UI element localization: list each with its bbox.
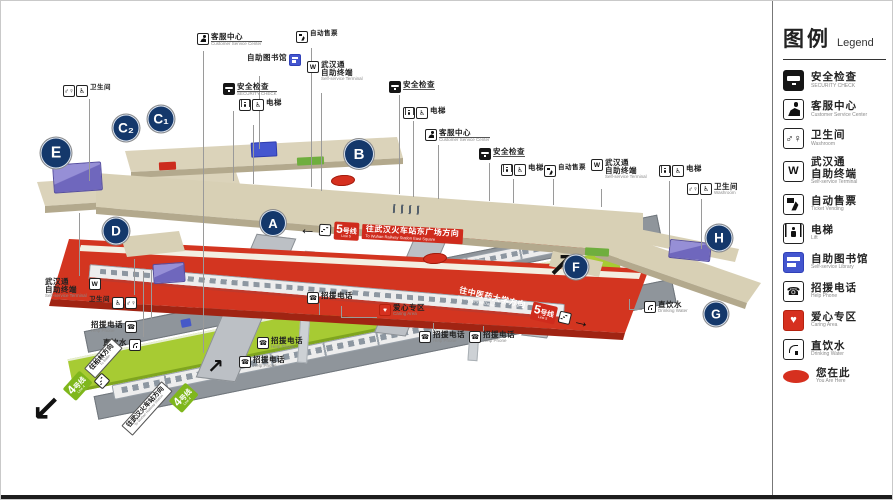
legend-title-zh: 图例 <box>783 23 831 53</box>
legend-label-en: SECURITY CHECK <box>811 84 857 90</box>
leader-line <box>341 306 342 317</box>
legend-icon <box>783 223 804 244</box>
legend-icon <box>783 370 809 383</box>
facility-callout: 电梯 <box>403 107 446 119</box>
leader-line <box>438 145 439 199</box>
callout-icons <box>307 292 319 304</box>
facility-callout: 招援电话 Help Phone <box>257 337 303 350</box>
leader-line <box>134 259 135 295</box>
callout-icons <box>289 54 301 66</box>
entrance-letter: G <box>711 307 721 321</box>
facility-callout: 自动售票 <box>544 165 586 177</box>
washroom-icon <box>63 85 75 97</box>
leader-line <box>253 125 254 184</box>
wheelchair-icon <box>76 85 88 97</box>
entrance-letter: A <box>268 216 277 231</box>
leader-line <box>513 179 514 203</box>
legend-item: 自助图书馆 Self-service Library <box>783 252 886 273</box>
callout-label-en: Self-service Terminal <box>45 294 87 299</box>
callout-label-zh: 安全检查 <box>403 81 435 90</box>
callout-label-en: Help Phone <box>483 339 515 344</box>
entrance-letter: D <box>111 224 121 239</box>
helpphone-icon <box>257 337 269 349</box>
water-icon <box>644 301 656 313</box>
callout-label-zh: 自助图书馆 <box>247 54 287 62</box>
callout-icons <box>403 107 428 119</box>
entrance-letter: C₂ <box>118 121 134 136</box>
callout-icons <box>389 81 401 93</box>
legend-title-en: Legend <box>837 37 874 49</box>
legend-label-en: Self-service Terminal <box>811 180 857 186</box>
legend-label-en: You Are Here <box>816 379 851 385</box>
care-icon <box>379 304 391 316</box>
stairs-icon <box>319 224 332 237</box>
wheelchair-icon <box>514 164 526 176</box>
leader-line <box>319 303 320 315</box>
legend-items: 安全检查 SECURITY CHECK 客服中心 Customer Servic… <box>783 70 886 385</box>
callout-icons <box>63 85 88 97</box>
legend-label-en: Caring Area <box>811 323 857 329</box>
facility-callout: 电梯 <box>659 165 702 177</box>
legend-item: 安全检查 SECURITY CHECK <box>783 70 886 91</box>
entrance-badge: B <box>344 139 374 169</box>
facility-callout: 爱心专区 Caring Area <box>379 304 425 317</box>
legend-item: 武汉通 自助终端 Self-service Terminal <box>783 157 886 186</box>
callout-icons <box>379 304 391 316</box>
callout-icons <box>307 61 319 73</box>
elevator-box-d <box>152 262 185 284</box>
helpphone-icon <box>307 292 319 304</box>
legend-item: 电梯 Lift <box>783 223 886 244</box>
callout-icons <box>544 165 556 177</box>
library-icon <box>289 54 301 66</box>
callout-icons <box>257 337 269 349</box>
callout-icons <box>501 164 526 176</box>
leader-line <box>203 51 204 353</box>
callout-label-en: Self-service Terminal <box>321 77 363 82</box>
callout-icons <box>479 148 491 160</box>
callout-label-en: Help Phone <box>253 364 285 369</box>
callout-label-en: Drinking Water <box>658 309 688 314</box>
legend-icon <box>783 70 804 91</box>
leader-line <box>669 181 670 247</box>
line5-badge: 5号线Line 5 <box>334 222 360 241</box>
legend-icon <box>783 252 804 273</box>
facility-callout: 卫生间 <box>63 85 111 97</box>
callout-label-en: Customer Service Center <box>211 42 262 47</box>
facility-callout: 自助图书馆 <box>247 54 301 66</box>
callout-icons <box>469 331 481 343</box>
washroom-icon <box>125 297 137 309</box>
callout-icons <box>644 301 656 313</box>
callout-icons <box>223 83 235 95</box>
legend-icon <box>783 161 804 182</box>
escalator-marker <box>159 162 176 171</box>
facility-callout: 安全检查 SECURITY CHECK <box>223 83 277 97</box>
legend-label-en: Drinking Water <box>811 352 846 358</box>
callout-icons <box>239 356 251 368</box>
facility-callout: 卫生间 <box>89 297 137 309</box>
legend-item: 卫生间 Washroom <box>783 128 886 149</box>
entrance-letter: C₁ <box>153 112 168 127</box>
facility-callout: 招援电话 Help Phone <box>91 321 137 334</box>
wheelchair-icon <box>112 297 124 309</box>
wheelchair-icon <box>416 107 428 119</box>
callout-label-zh: 电梯 <box>528 164 544 172</box>
facility-callout: 卫生间 Washroom <box>687 183 738 196</box>
tvm-icon <box>296 31 308 43</box>
facility-callout: 电梯 <box>501 164 544 176</box>
callout-label-zh: 招援电话 <box>321 292 353 300</box>
wuhantong-icon <box>307 61 319 73</box>
entrance-badge: G <box>704 302 729 327</box>
leader-line <box>399 95 400 194</box>
leader-line <box>89 99 90 181</box>
callout-label-zh: 安全检查 <box>493 148 525 157</box>
facility-callout: 武汉通 自助终端 Self-service Terminal <box>307 61 363 81</box>
entrance-letter: H <box>714 231 724 246</box>
facility-callout: 安全检查 <box>479 148 525 160</box>
callout-icons <box>419 331 431 343</box>
leader-line <box>143 271 144 337</box>
entrance-badge: D <box>103 218 130 245</box>
callout-icons <box>659 165 684 177</box>
leader-line <box>601 189 602 207</box>
helpphone-icon <box>419 331 431 343</box>
legend-label-en: Customer Service Center <box>811 113 867 119</box>
line5-direction-text: 往武汉火车站东广场方向To Wuhan Railway Station East… <box>361 224 463 244</box>
facility-callout: 自动售票 <box>296 31 338 43</box>
facility-callout: 招援电话 Help Phone <box>469 331 515 344</box>
facility-callout: 招援电话 <box>307 292 353 304</box>
security-icon <box>389 81 401 93</box>
legend-label-zh: 武汉通 <box>811 157 857 169</box>
legend-item: 您在此 You Are Here <box>783 368 886 385</box>
callout-label-en: Help Phone <box>433 339 465 344</box>
stairs-icon <box>557 310 571 324</box>
legend-icon <box>783 281 804 302</box>
callout-icons <box>425 129 437 141</box>
wheelchair-icon <box>700 183 712 195</box>
wheelchair-icon <box>252 99 264 111</box>
leader-line <box>151 269 152 319</box>
legend-label-en: Lift <box>811 236 834 242</box>
helpphone-icon <box>469 331 481 343</box>
callout-icons <box>112 297 137 309</box>
legend-header: 图例 Legend <box>783 23 886 60</box>
legend-label-en: Self-service Library <box>811 265 869 271</box>
legend-panel: 图例 Legend 安全检查 SECURITY CHECK 客服中心 Cust <box>772 1 893 500</box>
callout-label-zh: 电梯 <box>430 107 446 115</box>
security-icon <box>223 83 235 95</box>
lift-icon <box>239 99 251 111</box>
callout-icons <box>129 339 141 351</box>
callout-label-zh: 自动售票 <box>558 165 586 172</box>
legend-icon <box>783 99 804 120</box>
left-arrow: ← <box>299 220 317 238</box>
callout-icons <box>197 33 209 45</box>
leader-line <box>629 309 642 310</box>
facility-callout: 客服中心 Customer Service Center <box>425 129 490 143</box>
entrance-badge: C₁ <box>148 106 175 133</box>
lift-icon <box>403 107 415 119</box>
wuhantong-icon <box>591 159 603 171</box>
facility-callout: 招援电话 Help Phone <box>239 356 285 369</box>
leader-line <box>489 163 490 201</box>
legend-item: 招援电话 Help Phone <box>783 281 886 302</box>
station-diagram: ← 5号线Line 5 往武汉火车站东广场方向To Wuhan Railway … <box>1 1 771 500</box>
callout-label-zh: 自动售票 <box>310 31 338 38</box>
leader-line <box>701 199 702 249</box>
library-kiosk <box>251 141 278 157</box>
legend-label-zh: 客服中心 <box>811 101 867 113</box>
service-icon <box>197 33 209 45</box>
wheelchair-icon <box>672 165 684 177</box>
leader-line <box>629 299 630 309</box>
washroom-icon <box>687 183 699 195</box>
legend-icon <box>783 128 804 149</box>
entrance-badge: A <box>260 210 286 236</box>
legend-label-zh: 卫生间 <box>811 130 846 142</box>
legend-label-zh: 安全检查 <box>811 72 857 84</box>
entrance-badge: F <box>564 255 589 280</box>
leader-line <box>413 121 414 197</box>
northeast-arrow-small: ↗ <box>207 357 224 377</box>
callout-label-en: Help Phone <box>91 329 123 334</box>
callout-icons <box>239 99 264 111</box>
legend-label-en: Help Phone <box>811 294 857 300</box>
entrance-badge: C₂ <box>113 115 140 142</box>
legend-label-en: Washroom <box>811 142 846 148</box>
callout-label-en: Help Phone <box>271 345 303 350</box>
water-icon <box>129 339 141 351</box>
you-are-here-marker <box>331 174 356 187</box>
service-icon <box>425 129 437 141</box>
southwest-arrow: ↙ <box>31 391 61 427</box>
legend-item: 爱心专区 Caring Area <box>783 310 886 331</box>
callout-label-zh: 电梯 <box>686 165 702 173</box>
callout-label-en: Washroom <box>714 191 738 196</box>
leader-line <box>233 111 234 181</box>
legend-item: 客服中心 Customer Service Center <box>783 99 886 120</box>
tvm-icon <box>544 165 556 177</box>
lift-icon <box>501 164 513 176</box>
entrance-badge: H <box>706 225 733 252</box>
legend-icon <box>783 339 804 360</box>
helpphone-icon <box>239 356 251 368</box>
entrance-letter: F <box>572 260 580 274</box>
callout-icons <box>296 31 308 43</box>
callout-label-en: Customer Service Center <box>439 138 490 143</box>
legend-label-en: Ticket Vending <box>811 207 857 213</box>
facility-callout: 直饮水 Drinking Water <box>644 301 688 314</box>
legend-item: 直饮水 Drinking Water <box>783 339 886 360</box>
leader-line <box>321 93 322 191</box>
image-bottom-border <box>1 495 892 499</box>
callout-label-en: Caring Area <box>393 312 425 317</box>
callout-icons <box>591 159 603 171</box>
facility-callout: 客服中心 Customer Service Center <box>197 33 262 47</box>
entrance-letter: E <box>51 144 61 162</box>
leader-line <box>553 179 554 205</box>
leader-line <box>79 213 80 276</box>
facility-callout: 电梯 <box>239 99 282 111</box>
facility-callout: 武汉通 自助终端 Self-service Terminal <box>591 159 647 179</box>
facility-callout: 招援电话 Help Phone <box>419 331 465 344</box>
callout-icons <box>687 183 712 195</box>
entrance-letter: B <box>354 146 365 163</box>
helpphone-icon <box>125 321 137 333</box>
lift-icon <box>659 165 671 177</box>
security-icon <box>479 148 491 160</box>
callout-icons <box>89 278 101 290</box>
station-map: ← 5号线Line 5 往武汉火车站东广场方向To Wuhan Railway … <box>0 0 893 500</box>
callout-icons <box>125 321 137 333</box>
callout-label-zh: 电梯 <box>266 99 282 107</box>
callout-label-zh: 卫生间 <box>89 297 110 304</box>
legend-icon <box>783 194 804 215</box>
callout-label-zh: 卫生间 <box>90 85 111 92</box>
leader-line <box>341 317 377 318</box>
ticket-machine-row <box>585 247 609 256</box>
legend-icon <box>783 310 804 331</box>
wuhantong-icon <box>89 278 101 290</box>
callout-label-en: SECURITY CHECK <box>237 92 277 97</box>
legend-item: 自动售票 Ticket Vending <box>783 194 886 215</box>
callout-label-en: Self-service Terminal <box>605 175 647 180</box>
facility-callout: 安全检查 <box>389 81 435 93</box>
entrance-badge: E <box>41 138 72 169</box>
